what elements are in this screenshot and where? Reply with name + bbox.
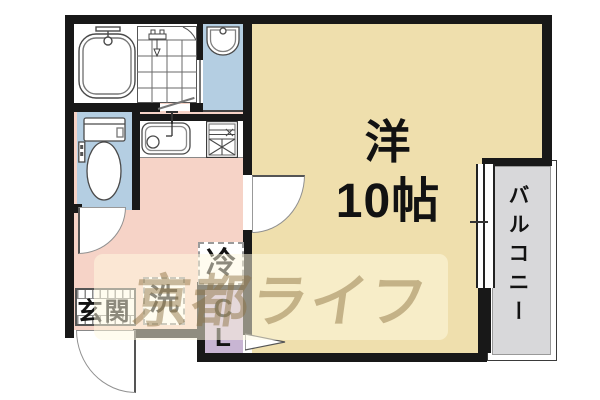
- main-room-west-wall-lower: [243, 230, 252, 335]
- fridge-box: 冷: [198, 242, 244, 285]
- shower-tile-area: [137, 26, 197, 103]
- washer-box: 洗: [143, 277, 185, 325]
- fridge-label: 冷: [206, 249, 236, 279]
- entrance-door-swing: [76, 330, 136, 393]
- outer-wall-right: [542, 15, 552, 166]
- washbasin-room-floor-edge: [203, 110, 243, 112]
- main-room-label: 洋 10帖: [268, 114, 508, 234]
- hall-bottom-wall: [133, 329, 205, 338]
- balcony-label: バルコニー: [502, 184, 532, 344]
- washbasin-room-door-line: [199, 60, 201, 103]
- toilet-right-wall: [132, 112, 140, 210]
- main-room-west-wall-upper: [243, 15, 252, 175]
- closet-door-marker: [245, 333, 287, 351]
- main-room-label-line2: 10帖: [268, 170, 508, 234]
- bathroom-bottom-wall-right: [190, 103, 203, 112]
- closet-label-line2: L: [203, 323, 243, 352]
- bathroom-washbasin-divider: [197, 24, 203, 60]
- bathroom-bottom-wall-left: [65, 103, 160, 112]
- bathtub-icon: [76, 26, 138, 102]
- washbasin-icon: [204, 25, 242, 61]
- bottom-wall: [197, 353, 487, 362]
- closet-label: C L: [203, 294, 243, 352]
- main-room-label-line1: 洋: [268, 114, 508, 170]
- kitchen-faucet-head: [166, 111, 178, 113]
- washer-label: 洗: [149, 286, 179, 316]
- kitchen-counter-back: [133, 114, 243, 121]
- closet-label-line1: C: [203, 294, 243, 323]
- toilet-icon: [78, 114, 132, 206]
- floor-plan: 玄関 冷 洗 洋 10帖 バルコニー C L 京都ライフ: [0, 0, 600, 400]
- entrance-label: 玄関: [75, 292, 134, 328]
- kitchen-sink-icon: [141, 122, 193, 156]
- window-lower-wall: [478, 288, 491, 353]
- gas-stove-icon: [206, 121, 238, 158]
- outer-wall-top: [65, 15, 552, 24]
- outer-wall-left: [65, 15, 74, 338]
